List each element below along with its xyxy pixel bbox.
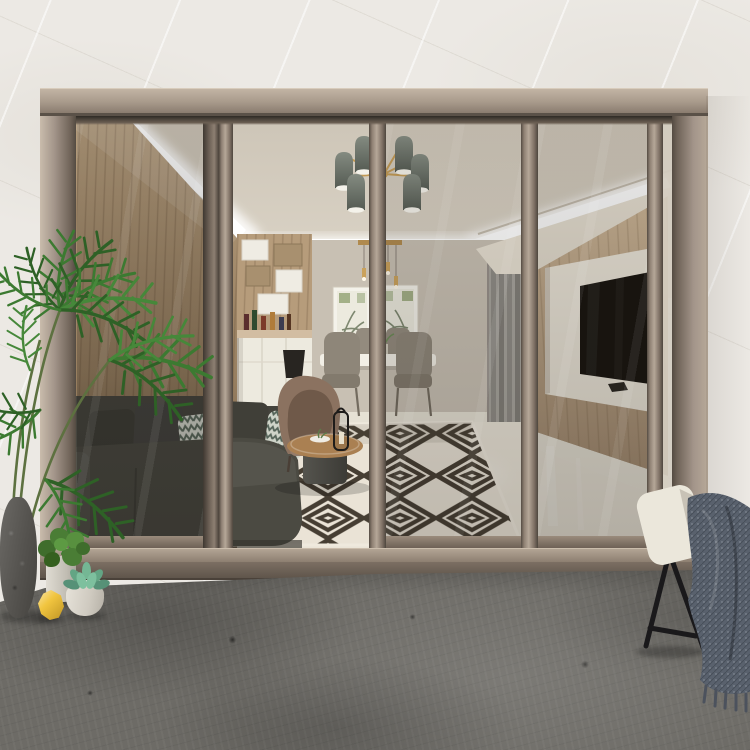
glass-panel-4 [538, 116, 663, 536]
glass-panel-3 [386, 116, 521, 536]
door-frame-lintel [40, 88, 708, 116]
succulent-plant [64, 560, 108, 600]
glass-panel-edge [663, 116, 672, 536]
door-top-track [76, 116, 672, 125]
knit-throw [687, 493, 750, 711]
patio-chair-and-throw [630, 480, 750, 750]
palm-fronds [0, 224, 216, 561]
door-stile-right [521, 116, 538, 548]
photo-stage [0, 0, 750, 750]
candle-lantern [334, 409, 348, 451]
stone-planter [0, 497, 37, 618]
door-stile-center [369, 116, 386, 548]
tray [310, 436, 330, 443]
panel-bottom-rail-3 [386, 536, 521, 548]
